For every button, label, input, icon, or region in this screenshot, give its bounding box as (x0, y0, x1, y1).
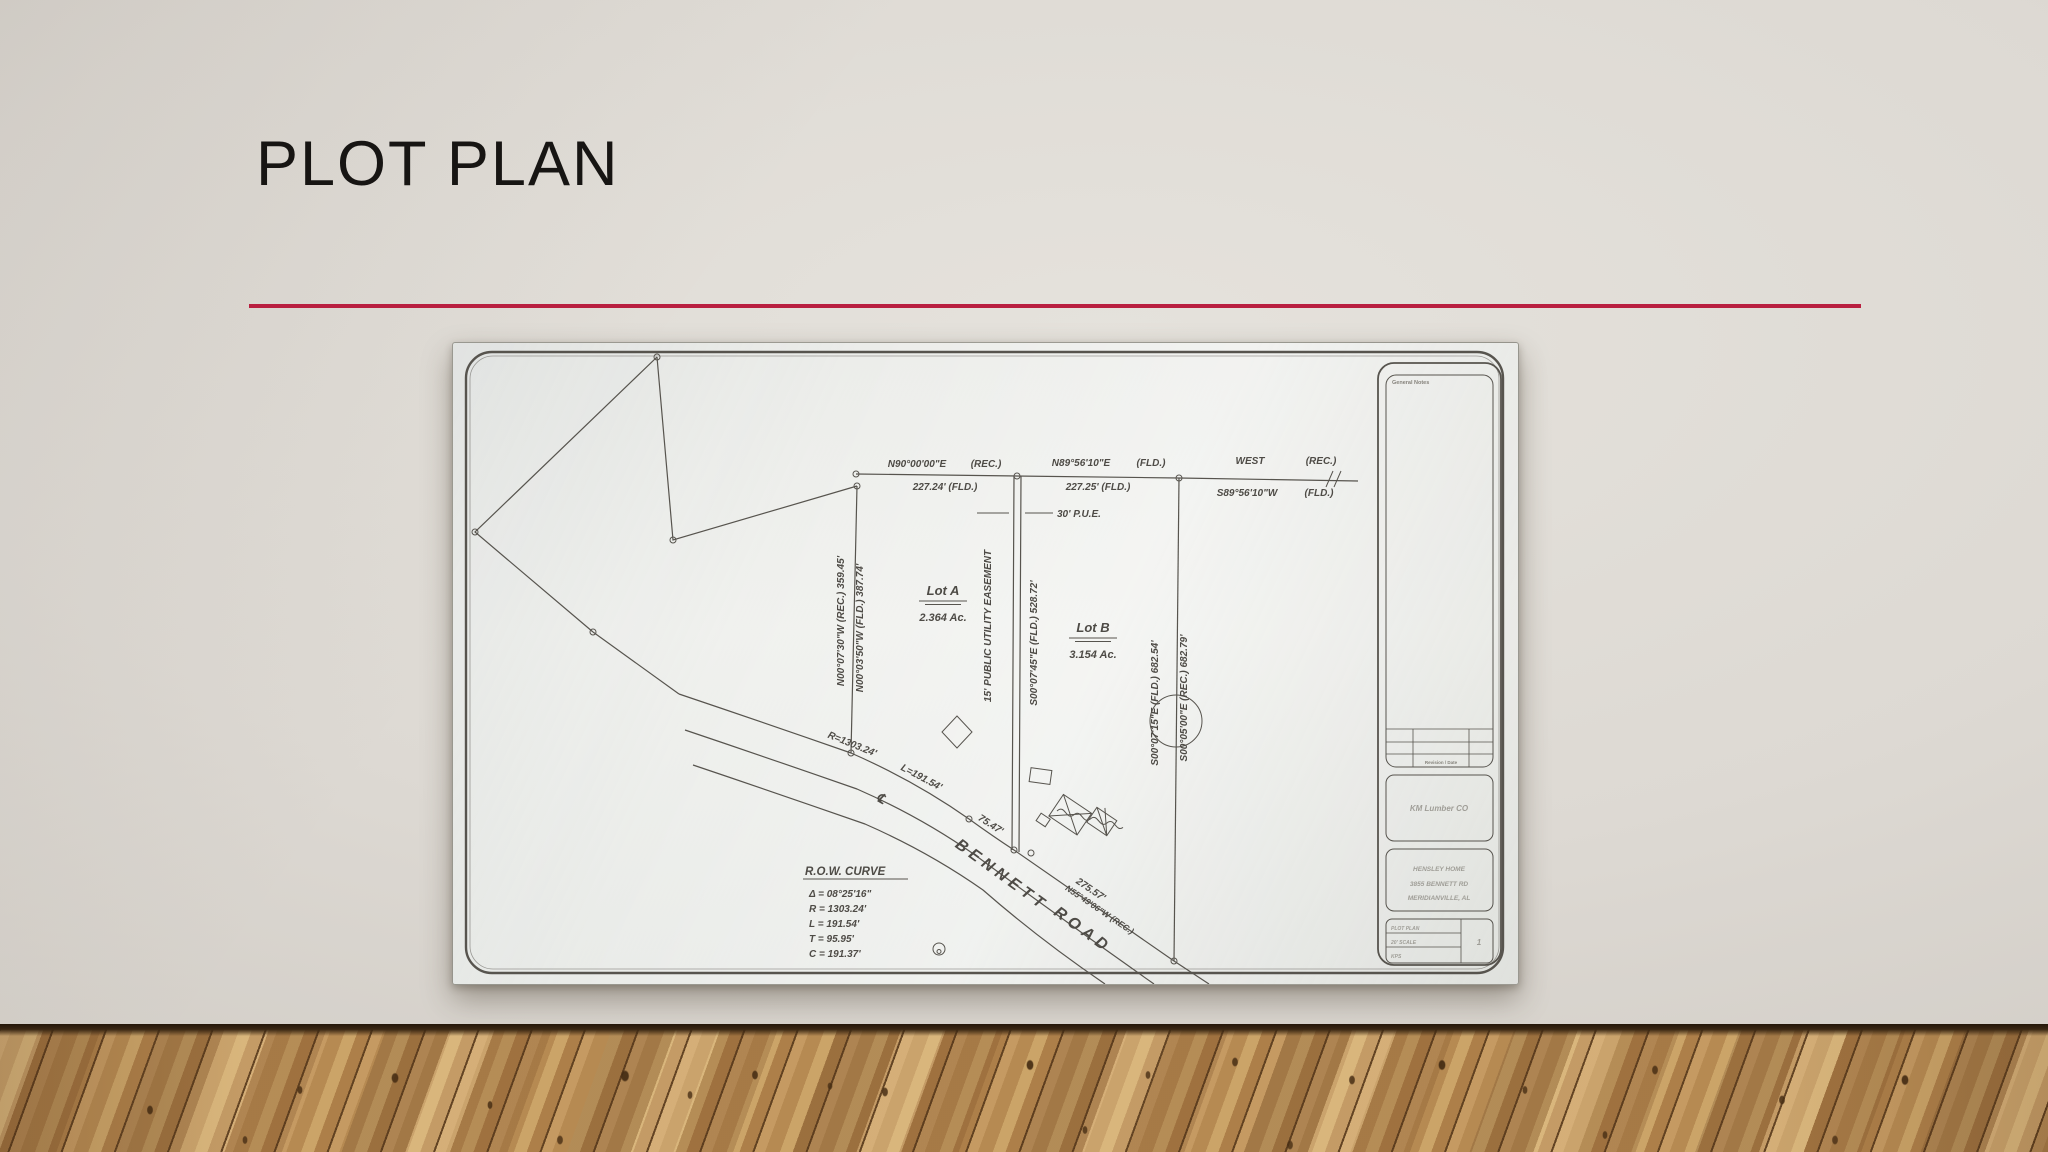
road-name-bennett: BENNETT (952, 836, 1051, 915)
sheet-row-3: KPS (1391, 954, 1402, 960)
plot-plan-image: N90°00'00"E (REC.) 227.24' (FLD.) N89°56… (452, 342, 1519, 985)
distance-label: 227.25' (FLD.) (1065, 482, 1131, 493)
row-curve-title: R.O.W. CURVE (805, 866, 886, 878)
property-lines (475, 357, 1358, 961)
easement-line-fld-label: S00°07'45"E (FLD.) 528.72' (1029, 580, 1040, 706)
plot-plan-drawing: N90°00'00"E (REC.) 227.24' (FLD.) N89°56… (453, 343, 1518, 984)
lot-a-name: Lot A (927, 583, 960, 598)
centerline-symbol: ℄ (874, 790, 889, 807)
revision-label: Revision / Date (1425, 760, 1458, 765)
bearing-label: S89°56'10"W (1217, 488, 1279, 499)
bearing-label: N89°56'10"E (1052, 458, 1111, 469)
general-notes-label: General Notes (1392, 380, 1429, 386)
company-name: KM Lumber CO (1410, 804, 1469, 813)
wood-floor (0, 1026, 2048, 1152)
east-line-rec-label: S00°05'00"E (REC.) 682.79' (1179, 634, 1190, 762)
page-title: PLOT PLAN (256, 128, 620, 200)
west-line-fld-label: N00°03'50"W (FLD.) 387.74' (855, 563, 866, 692)
basis-label: (REC.) (971, 459, 1002, 470)
client-line-3: MERIDIANVILLE, AL (1408, 895, 1471, 902)
distance-label: 227.24' (FLD.) (912, 482, 978, 493)
lot-b-area: 3.154 Ac. (1069, 649, 1116, 661)
sheet-row-1: PLOT PLAN (1391, 926, 1420, 932)
east-line-fld-label: S00°07'15"E (FLD.) 682.54' (1150, 640, 1161, 766)
accent-rule (249, 304, 1861, 308)
building-shapes (942, 716, 1124, 858)
curve-l: L = 191.54' (809, 919, 860, 930)
pue-label: 30' P.U.E. (1057, 509, 1101, 520)
sheet-number: 1 (1477, 938, 1482, 947)
curve-c: C = 191.37' (809, 949, 861, 960)
sheet-row-2: 20' SCALE (1390, 940, 1417, 946)
curve-r: R = 1303.24' (809, 904, 867, 915)
bearing-label: N90°00'00"E (888, 459, 947, 470)
west-line-rec-label: N00°07'30"W (REC.) 359.45' (836, 555, 847, 686)
client-line-1: HENSLEY HOME (1413, 866, 1466, 873)
north-boundary-labels: N90°00'00"E (REC.) 227.24' (FLD.) N89°56… (888, 456, 1337, 520)
road-labels: R=1303.24' L=191.54' 75.47' 275.57' N55°… (826, 730, 1136, 957)
road-lines (679, 694, 1209, 984)
basis-label: (REC.) (1306, 456, 1337, 467)
utility-easement-label: 15' PUBLIC UTILITY EASEMENT (983, 549, 994, 702)
lot-b-name: Lot B (1076, 620, 1109, 635)
basis-label: (FLD.) (1137, 458, 1167, 469)
curve-t: T = 95.95' (809, 934, 855, 945)
lot-labels: Lot A 2.364 Ac. Lot B 3.154 Ac. (918, 583, 1117, 661)
title-block: General Notes Revision / Date KM Lumber … (1378, 363, 1501, 965)
lot-a-area: 2.364 Ac. (918, 612, 966, 624)
slide-canvas: PLOT PLAN (0, 0, 2048, 1152)
row-curve-table: R.O.W. CURVE Δ = 08°25'16" R = 1303.24' … (803, 866, 945, 960)
basis-label: (FLD.) (1305, 488, 1335, 499)
curve-delta: Δ = 08°25'16" (808, 889, 871, 900)
bearing-label: WEST (1236, 456, 1266, 467)
client-line-2: 3855 BENNETT RD (1410, 881, 1468, 888)
